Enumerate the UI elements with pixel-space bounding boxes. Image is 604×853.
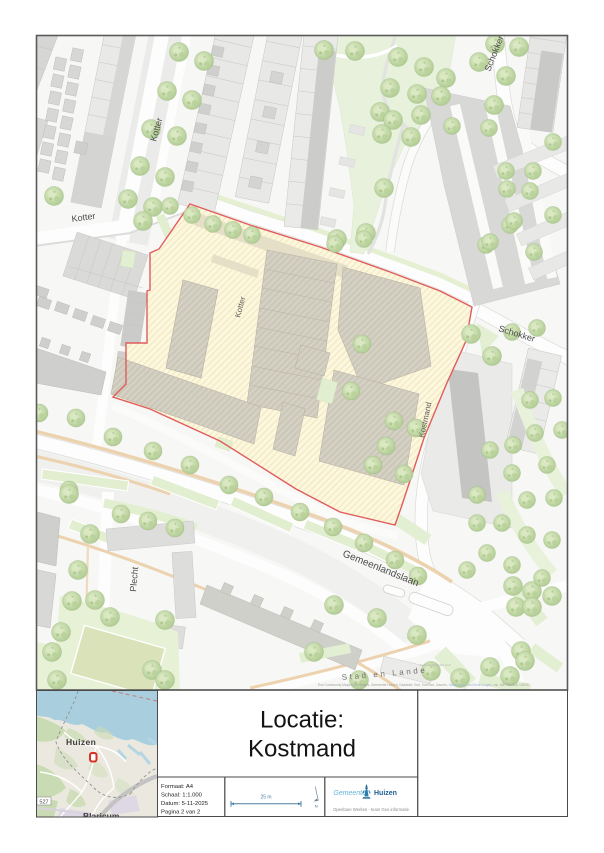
- svg-text:Esri Community Maps Contributo: Esri Community Maps Contributors, Gemeen…: [318, 683, 530, 687]
- svg-text:Pagina 2 van 2: Pagina 2 van 2: [161, 810, 200, 816]
- svg-text:N: N: [315, 804, 318, 809]
- svg-text:25 m: 25 m: [260, 795, 271, 801]
- svg-text:Locatie:: Locatie:: [260, 707, 344, 734]
- svg-text:Openbare Werken - team Geo inf: Openbare Werken - team Geo informatie: [333, 807, 409, 812]
- svg-text:Lindewijf Nieuw RC foort: Lindewijf Nieuw RC foort: [420, 663, 451, 667]
- svg-text:Gemeente: Gemeente: [333, 790, 366, 797]
- svg-text:527: 527: [39, 800, 48, 806]
- svg-text:Huizen: Huizen: [66, 737, 96, 747]
- svg-text:Huizen: Huizen: [374, 790, 397, 797]
- svg-text:Datum: 5-11-2025: Datum: 5-11-2025: [161, 801, 209, 807]
- svg-text:Schaal: 1:1.000: Schaal: 1:1.000: [161, 793, 203, 799]
- svg-text:Formaat: A4: Formaat: A4: [161, 784, 194, 790]
- svg-text:Blaricum: Blaricum: [83, 811, 120, 821]
- svg-text:Kostmand: Kostmand: [248, 736, 356, 763]
